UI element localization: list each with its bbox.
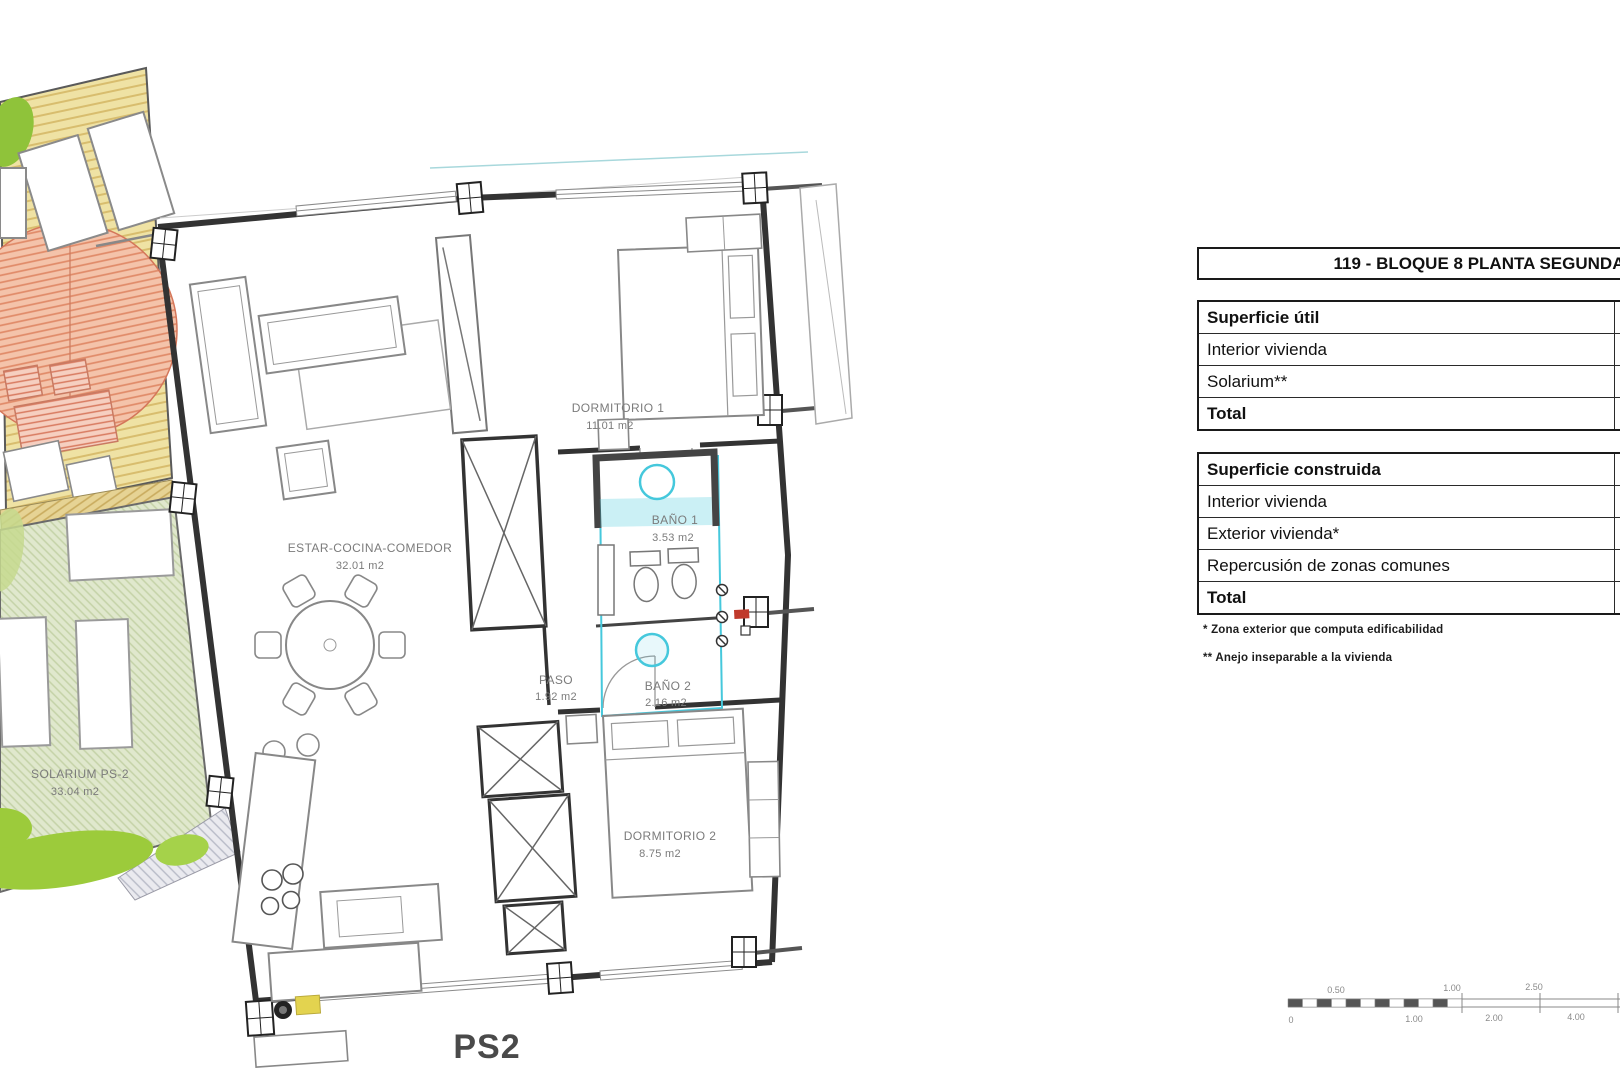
scale-bottom-label: 4.00 [1567,1012,1585,1022]
bidet-icon [668,548,700,599]
scale-bottom-label: 0 [1288,1015,1293,1025]
room-label-estar: ESTAR-COCINA-COMEDOR [288,541,452,555]
room-area-estar: 32.01 m2 [336,560,384,572]
table-total-row: Total [1199,581,1620,613]
room-label-bano-1: BAÑO 1 [652,513,698,527]
footnote-exterior: * Zona exterior que computa edificabilid… [1203,624,1443,636]
duct-closet [436,235,487,433]
footnote-anejo: ** Anejo inseparable a la vivienda [1203,652,1392,664]
table-row: Interior vivienda [1199,485,1620,517]
scale-bar: 0.50 1.00 2.50 0 1.00 2.00 4.00 [1288,982,1620,1025]
room-label-solarium: SOLARIUM PS-2 [31,767,129,781]
solarium-ps2 [0,497,240,900]
scale-top-label: 1.00 [1443,983,1461,993]
scale-bottom-label: 1.00 [1405,1014,1423,1024]
scale-top-label: 2.50 [1525,982,1543,992]
bathrooms [596,452,750,716]
scale-top-label: 0.50 [1327,985,1345,995]
door-marker [734,609,749,619]
room-label-paso: PASO [539,673,573,687]
table-row: Solarium** [1199,365,1620,397]
table-row: Interior vivienda [1199,333,1620,365]
room-label-bano-2: BAÑO 2 [645,679,691,693]
room-label-dormitorio-2: DORMITORIO 2 [624,829,717,843]
living-furniture [190,277,451,763]
neighbor-wall [800,184,852,424]
plan-title: 119 - BLOQUE 8 PLANTA SEGUNDA [1197,247,1620,280]
table-row: Exterior vivienda* [1199,517,1620,549]
vanity [598,545,614,615]
dining-table [286,601,374,689]
room-label-dormitorio-1: DORMITORIO 1 [572,401,665,415]
room-area-bano-1: 3.53 m2 [652,532,694,544]
sink-highlight [295,995,320,1015]
room-area-paso: 1.92 m2 [535,691,577,703]
superficie-util-table: Superficie útil Interior vivienda Solari… [1197,300,1620,431]
room-area-dormitorio-1: 11.01 m2 [586,420,633,432]
table-header: Superficie construida [1199,454,1620,485]
table-total-row: Total [1199,397,1620,429]
room-area-bano-2: 2.16 m2 [645,697,687,709]
room-area-solarium: 33.04 m2 [51,786,99,798]
shower2-drain-icon [636,634,668,666]
scale-bottom-label: 2.00 [1485,1013,1503,1023]
roof-edge-line [430,152,808,168]
superficie-construida-table: Superficie construida Interior vivienda … [1197,452,1620,615]
closet [748,761,780,877]
sheet-label: PS2 [453,1028,520,1066]
floorplan-sheet: ESTAR-COCINA-COMEDOR 32.01 m2 DORMITORIO… [0,0,1620,1080]
neighbor-solarium [0,68,177,512]
room-area-dormitorio-2: 8.75 m2 [639,848,681,860]
table-header: Superficie útil [1199,302,1620,333]
toilet-icon [630,551,662,602]
kitchen [233,753,442,1019]
table-row: Repercusión de zonas comunes [1199,549,1620,581]
door-hardware-icons [717,585,728,647]
